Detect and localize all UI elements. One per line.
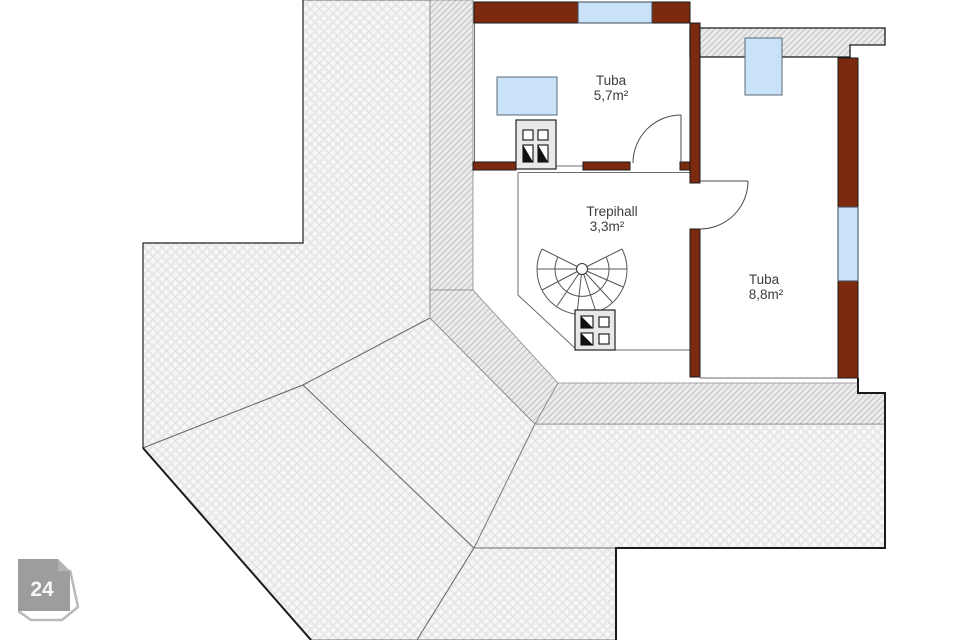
wall-center-lower: [690, 229, 700, 377]
stairhall-name-label: Trepihall: [586, 204, 637, 219]
wall-mid-stub: [680, 162, 690, 170]
room1-area-label: 5,7m²: [594, 88, 629, 103]
wall-center-upper: [690, 23, 700, 183]
vent-shaft-room1-icon: [516, 120, 556, 169]
wall-mid-center: [583, 162, 630, 170]
roof-window-room1-icon: [497, 77, 557, 115]
room1-name-label: Tuba: [596, 73, 627, 88]
roof-window-room2-icon: [745, 38, 782, 95]
room2-name-label: Tuba: [749, 272, 780, 287]
room2-area-label: 8,8m²: [749, 287, 784, 302]
window-right-icon: [838, 207, 858, 281]
wall-right-upper: [838, 58, 858, 207]
wall-mid-left: [473, 162, 516, 170]
vent-shaft-stairhall-icon: [575, 310, 615, 350]
eave-strip-bottom: [535, 383, 885, 424]
badge-number-label: 24: [30, 578, 54, 601]
stairhall-area-label: 3,3m²: [590, 219, 625, 234]
window-top-icon: [578, 2, 652, 23]
floor-plan-page: Tuba 5,7m² Trepihall 3,3m² Tuba 8,8m² 24: [0, 0, 960, 640]
eave-strip-left: [430, 0, 473, 290]
wall-right-lower: [838, 281, 858, 378]
floor-plan-drawing: Tuba 5,7m² Trepihall 3,3m² Tuba 8,8m² 24: [0, 0, 960, 640]
